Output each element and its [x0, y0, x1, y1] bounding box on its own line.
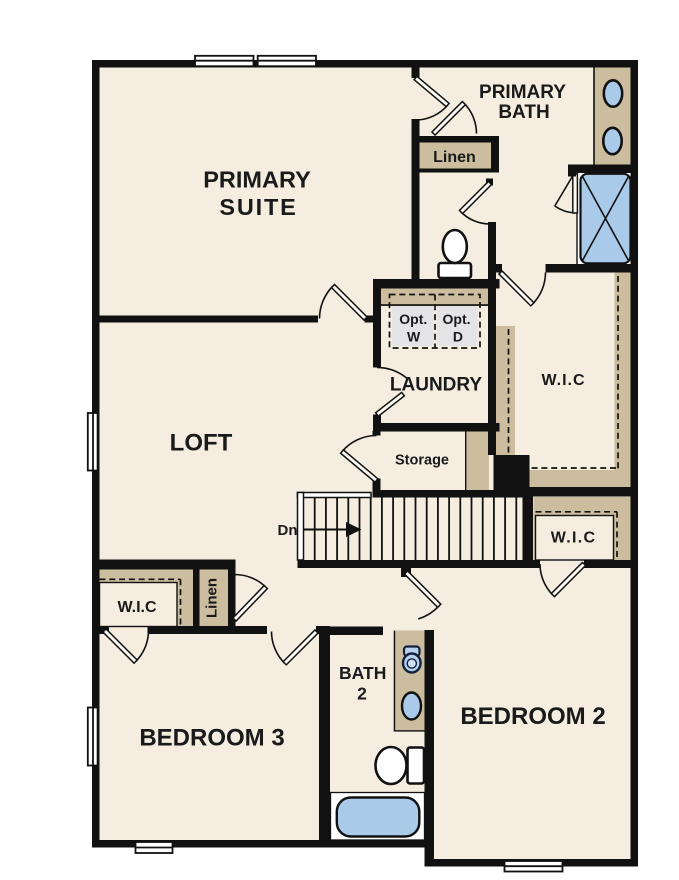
- svg-text:LAUNDRY: LAUNDRY: [390, 375, 483, 396]
- svg-text:Storage: Storage: [395, 453, 449, 469]
- svg-text:W: W: [407, 328, 421, 344]
- svg-text:PRIMARY: PRIMARY: [479, 82, 566, 103]
- svg-text:LOFT: LOFT: [170, 430, 233, 457]
- svg-text:Opt.: Opt.: [443, 311, 471, 327]
- svg-text:W.I.C: W.I.C: [541, 372, 585, 389]
- svg-text:BATH: BATH: [339, 663, 386, 683]
- svg-text:Opt.: Opt.: [399, 311, 427, 327]
- svg-text:Dn: Dn: [278, 522, 298, 539]
- svg-text:W.I.C: W.I.C: [551, 530, 597, 547]
- svg-text:D: D: [453, 328, 463, 344]
- svg-text:Linen: Linen: [204, 578, 221, 618]
- svg-text:W.I.C: W.I.C: [117, 599, 157, 616]
- svg-text:SUITE: SUITE: [219, 194, 297, 220]
- svg-text:Linen: Linen: [433, 149, 476, 166]
- svg-text:BEDROOM 2: BEDROOM 2: [460, 703, 605, 730]
- svg-text:2: 2: [357, 684, 367, 704]
- svg-text:BATH: BATH: [498, 102, 549, 123]
- svg-text:PRIMARY: PRIMARY: [203, 167, 311, 193]
- svg-text:BEDROOM 3: BEDROOM 3: [139, 725, 284, 752]
